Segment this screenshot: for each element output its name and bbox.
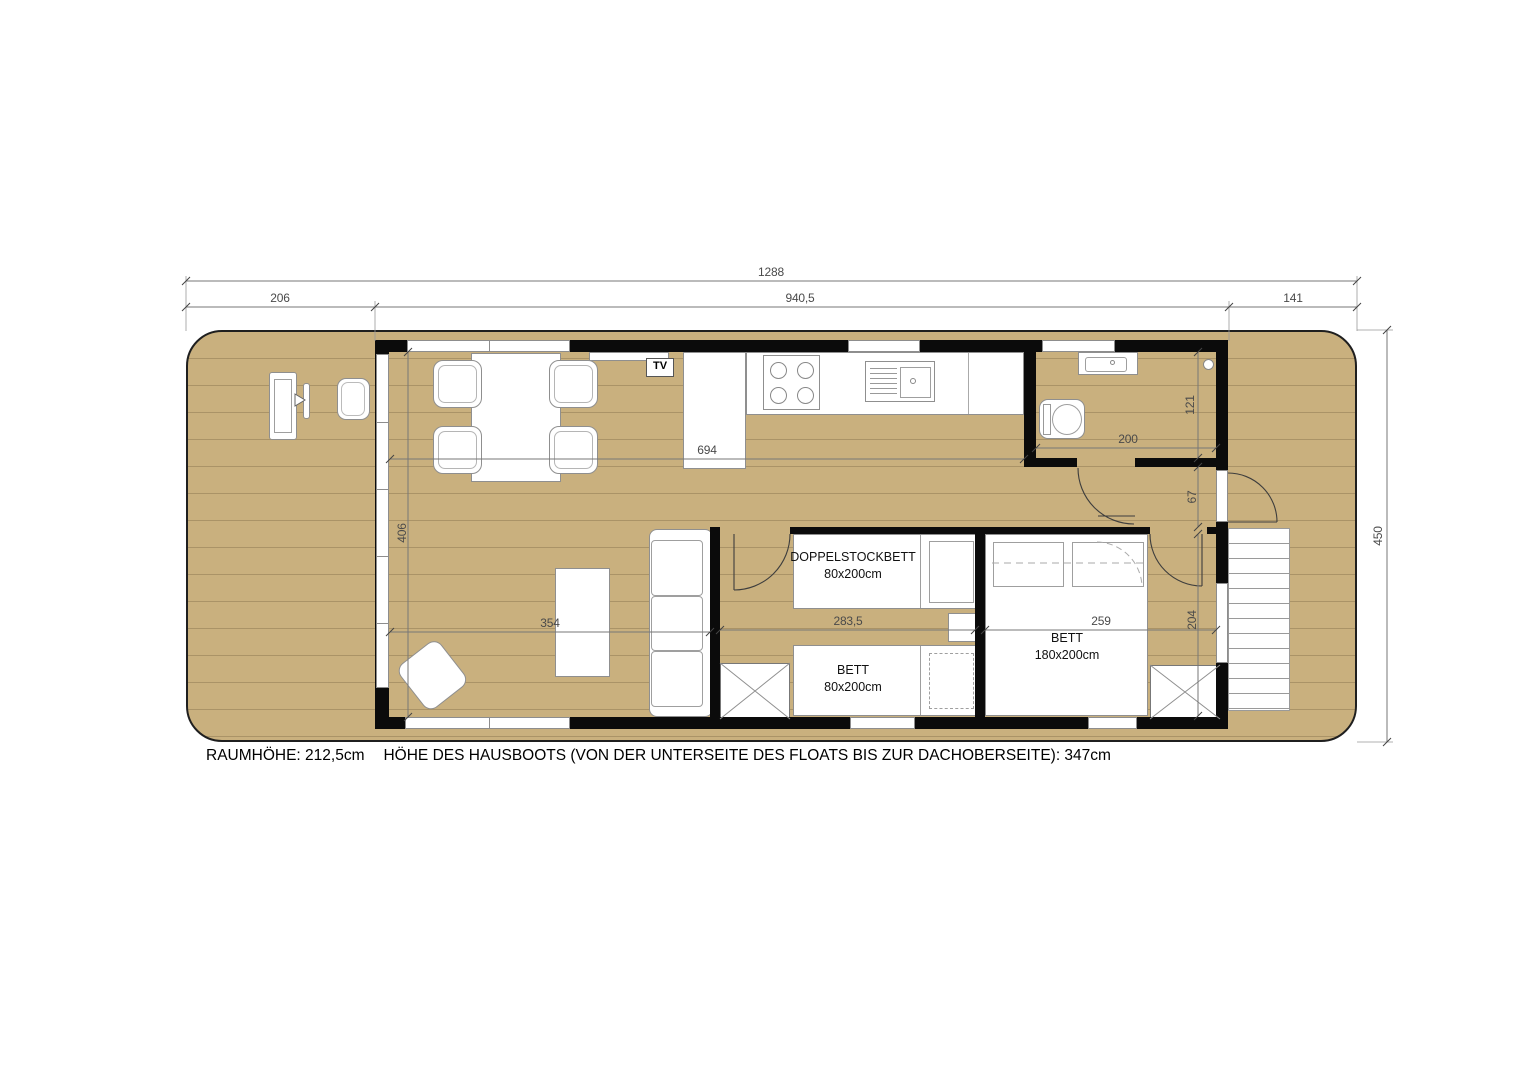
wall-east-lower xyxy=(1216,663,1228,729)
burner xyxy=(797,387,814,404)
faucet xyxy=(1110,360,1115,365)
window-mullion xyxy=(377,556,388,557)
toilet-tank xyxy=(1043,404,1051,435)
pillow xyxy=(1072,542,1144,587)
window-mullion xyxy=(377,489,388,490)
dim-bath-width: 200 xyxy=(1118,432,1137,446)
sofa xyxy=(649,529,713,717)
master-bed-label-line1: BETT xyxy=(1035,630,1100,647)
dining-chair xyxy=(433,426,482,474)
window-kidsroom-south xyxy=(850,717,915,729)
window-west-glazing xyxy=(376,354,389,688)
sofa-cushion xyxy=(651,540,703,596)
single-bed xyxy=(793,645,979,716)
dim-master-room-depth: 204 xyxy=(1185,610,1199,629)
helm-seat xyxy=(337,378,370,420)
helm-console-panel xyxy=(274,379,292,433)
dining-chair xyxy=(549,426,598,474)
ceiling-light xyxy=(1203,359,1214,370)
window-mullion xyxy=(377,623,388,624)
dining-chair xyxy=(549,360,598,408)
wall-bedroom-divider xyxy=(975,527,985,729)
window-bathroom xyxy=(1042,340,1115,352)
wall-hall-south xyxy=(790,527,1150,534)
stairs xyxy=(1228,528,1290,711)
window-master-south xyxy=(1088,717,1137,729)
pillow xyxy=(929,541,974,603)
bunk-bed-label: DOPPELSTOCKBETT 80x200cm xyxy=(790,549,916,583)
window-mullion xyxy=(489,341,490,351)
bed-divider xyxy=(920,646,921,715)
pillow xyxy=(993,542,1064,587)
dim-hull-width: 450 xyxy=(1371,526,1385,545)
dim-cabin-length: 940,5 xyxy=(785,291,814,305)
window-kitchen xyxy=(848,340,920,352)
coffee-table xyxy=(555,568,610,677)
dim-hall-width: 67 xyxy=(1185,491,1199,504)
footer-note: RAUMHÖHE: 212,5cmHÖHE DES HAUSBOOTS (VON… xyxy=(206,747,1130,765)
dim-master-room-width: 259 xyxy=(1091,614,1110,628)
window-master-east xyxy=(1216,583,1228,663)
dining-table xyxy=(471,353,561,482)
kitchen-sink xyxy=(865,361,935,402)
bed-divider xyxy=(920,535,921,608)
sofa-cushion xyxy=(651,596,703,651)
master-bed-label-line2: 180x200cm xyxy=(1035,647,1100,664)
single-bed-label: BETT 80x200cm xyxy=(824,662,882,696)
helm-seat-cushion xyxy=(341,382,365,416)
wall-hall-south-end xyxy=(1207,527,1222,534)
wall-kidsroom-west xyxy=(710,527,720,729)
toilet-bowl xyxy=(1052,404,1082,435)
toilet xyxy=(1039,399,1085,439)
floor-plan: 1288 206 940,5 141 450 694 406 354 283,5… xyxy=(0,0,1527,1080)
dim-hull-length: 1288 xyxy=(758,265,784,279)
helm-console xyxy=(269,372,297,440)
window-living-south xyxy=(405,717,570,729)
wall-bathroom-west xyxy=(1024,340,1036,467)
dim-living-depth: 406 xyxy=(395,523,409,542)
stove xyxy=(763,355,820,410)
double-bed xyxy=(985,534,1148,716)
basin xyxy=(1085,357,1127,372)
dim-living-width: 354 xyxy=(540,616,559,630)
steering-wheel xyxy=(303,383,310,419)
sofa-cushion xyxy=(651,651,703,707)
bathroom-sink xyxy=(1078,352,1138,375)
single-bed-label-line2: 80x200cm xyxy=(824,679,882,696)
wall-bathroom-south-left xyxy=(1024,458,1077,467)
master-bed-label: BETT 180x200cm xyxy=(1035,630,1100,664)
bunk-bed-label-line1: DOPPELSTOCKBETT xyxy=(790,549,916,566)
burner xyxy=(770,387,787,404)
dim-front-deck: 206 xyxy=(270,291,289,305)
burner xyxy=(797,362,814,379)
room-height-note: RAUMHÖHE: 212,5cm xyxy=(206,747,364,764)
counter-divider xyxy=(968,353,969,414)
window-mullion xyxy=(377,422,388,423)
dim-bath-depth: 121 xyxy=(1183,395,1197,414)
dining-chair xyxy=(433,360,482,408)
boat-height-note: HÖHE DES HAUSBOOTS (VON DER UNTERSEITE D… xyxy=(383,747,1110,764)
dim-kitchen-run: 694 xyxy=(697,443,716,457)
single-bed-label-line1: BETT xyxy=(824,662,882,679)
wall-bathroom-south-right xyxy=(1135,458,1222,467)
bunk-bed-label-line2: 80x200cm xyxy=(790,566,916,583)
wall-east-upper xyxy=(1216,340,1228,470)
wardrobe xyxy=(720,663,790,719)
bedside-shelf xyxy=(948,613,976,642)
dim-kids-room-width: 283,5 xyxy=(833,614,862,628)
window-dining xyxy=(407,340,570,352)
wardrobe xyxy=(1150,665,1220,719)
sink-drainboard xyxy=(870,368,897,397)
window-mullion xyxy=(489,718,490,728)
faucet xyxy=(910,378,916,384)
burner xyxy=(770,362,787,379)
pillow-dashed xyxy=(929,653,974,709)
tv-label: TV xyxy=(646,358,674,377)
entrance-door-opening xyxy=(1216,470,1228,522)
dim-rear-deck: 141 xyxy=(1283,291,1302,305)
